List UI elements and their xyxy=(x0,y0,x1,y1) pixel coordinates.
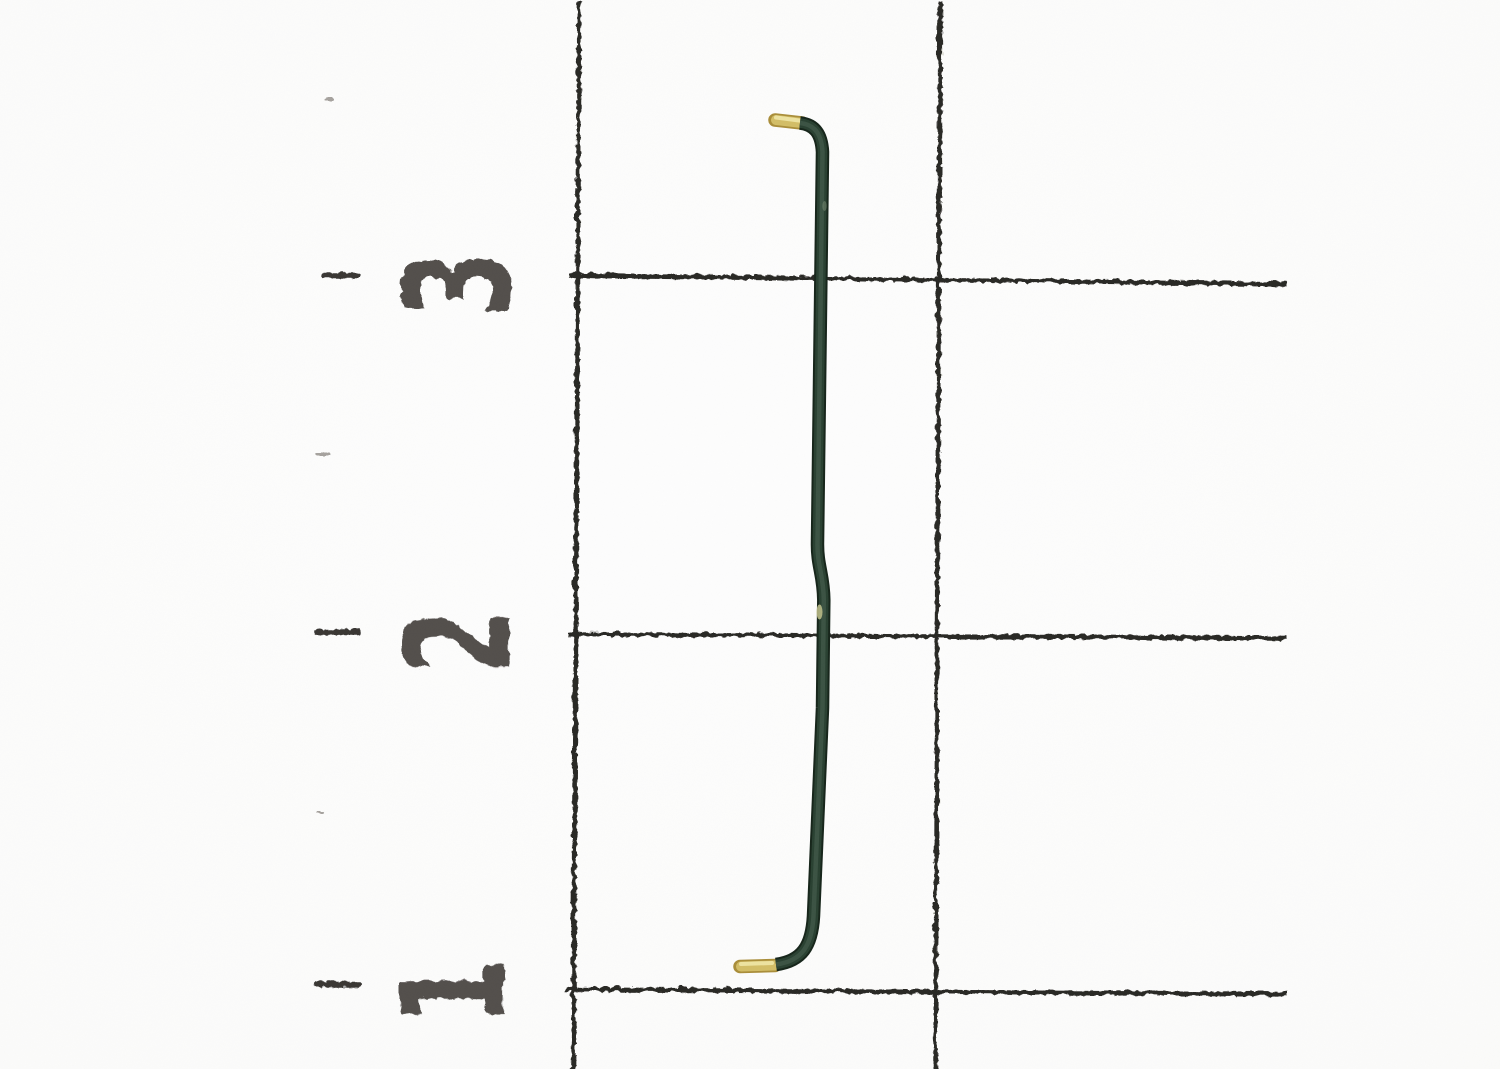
scene-svg: 3 2 1 xyxy=(0,0,1500,1069)
photo-wire-on-ruler-grid: 3 2 1 xyxy=(0,0,1500,1069)
photo-grain-overlay xyxy=(0,0,1500,1069)
